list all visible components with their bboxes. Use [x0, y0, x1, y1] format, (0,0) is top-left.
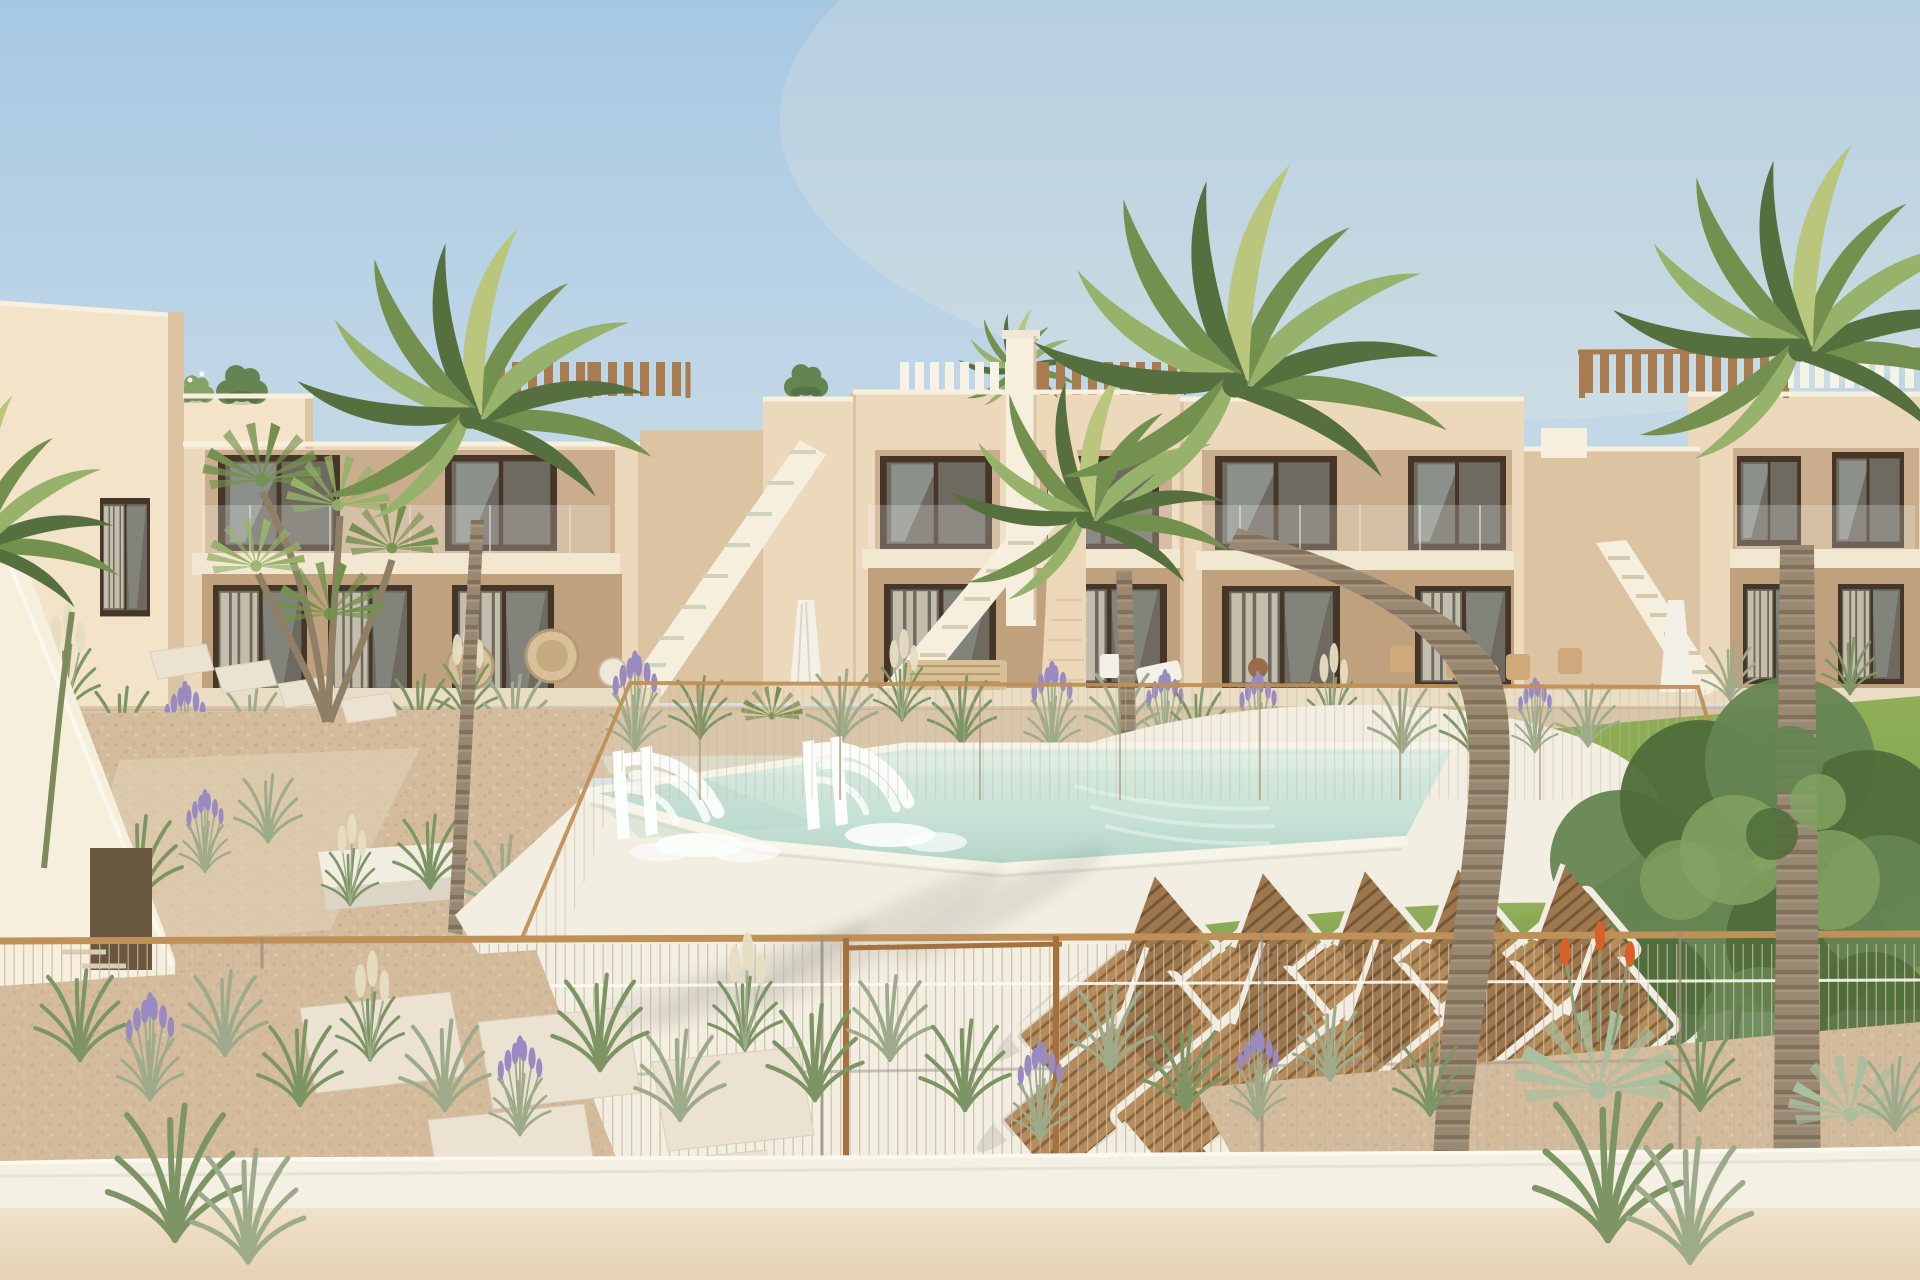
papasan-cushion — [536, 640, 568, 672]
jet-foam — [903, 832, 967, 852]
left-wing-door — [100, 498, 150, 616]
scene — [0, 0, 1920, 1280]
pergola-b-white — [894, 362, 1014, 392]
jet-foam — [710, 842, 780, 862]
bush-flowers — [200, 372, 205, 377]
block-c-slab — [1196, 551, 1514, 571]
bush-flowers — [188, 378, 193, 383]
block-d-balcony-glass — [1735, 505, 1915, 553]
jet-foam — [630, 843, 690, 861]
stair-gap — [1524, 428, 1722, 700]
block-d-slab — [1730, 549, 1920, 569]
architectural-render — [0, 0, 1920, 1280]
bulkhead-shade — [305, 395, 313, 449]
parapet-box — [1541, 428, 1587, 458]
pool-fence-mesh — [630, 687, 1698, 799]
